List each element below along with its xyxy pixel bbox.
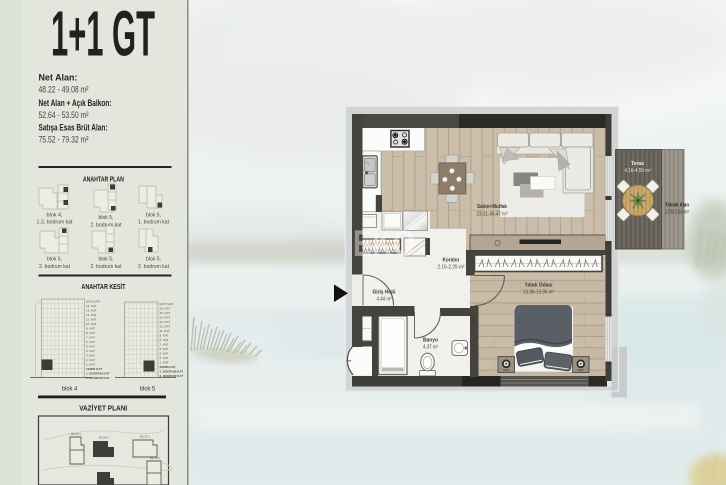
svg-text:11. KAT: 11. KAT xyxy=(86,318,97,322)
svg-text:blok 5,: blok 5, xyxy=(99,215,114,221)
svg-text:1. BODRUM KAT: 1. BODRUM KAT xyxy=(160,370,184,374)
svg-text:7. KAT: 7. KAT xyxy=(160,343,169,347)
svg-text:2.00-2.50 m²: 2.00-2.50 m² xyxy=(665,210,689,216)
svg-text:2. bodrum kat: 2. bodrum kat xyxy=(138,264,170,270)
svg-text:7. KAT: 7. KAT xyxy=(86,336,95,340)
svg-text:3. KAT: 3. KAT xyxy=(160,356,169,360)
svg-text:blok 5,: blok 5, xyxy=(146,213,161,219)
svg-text:blok 5: blok 5 xyxy=(140,386,156,393)
svg-text:14. KAT: 14. KAT xyxy=(160,316,171,320)
svg-text:ANAHTAR KESİT: ANAHTAR KESİT xyxy=(81,282,125,291)
svg-text:4.44 m²: 4.44 m² xyxy=(377,297,392,303)
svg-text:3. KAT: 3. KAT xyxy=(86,354,95,358)
svg-text:75.52 - 79.32 m²: 75.52 - 79.32 m² xyxy=(39,135,89,146)
svg-text:BLOK 5: BLOK 5 xyxy=(150,456,160,460)
svg-text:48.22 - 49.08 m²: 48.22 - 49.08 m² xyxy=(39,85,89,96)
svg-text:2.16-2.25 m²: 2.16-2.25 m² xyxy=(438,265,465,271)
svg-text:23.21-36.47 m²: 23.21-36.47 m² xyxy=(477,212,508,218)
svg-text:52.64 - 53.50 m²: 52.64 - 53.50 m² xyxy=(39,110,89,121)
svg-text:Koridor: Koridor xyxy=(443,258,461,264)
svg-text:ÇATI KATI: ÇATI KATI xyxy=(160,302,174,306)
svg-text:VAZİYET PLANI: VAZİYET PLANI xyxy=(79,404,127,413)
svg-text:ZEMİN KAT: ZEMİN KAT xyxy=(86,366,102,371)
svg-text:13.36-13.95 m²: 13.36-13.95 m² xyxy=(523,290,554,296)
svg-text:4.37 m²: 4.37 m² xyxy=(423,345,438,351)
svg-text:5. KAT: 5. KAT xyxy=(160,347,169,351)
svg-text:Salon+Mutfak: Salon+Mutfak xyxy=(477,204,508,210)
svg-text:ANAHTAR PLAN: ANAHTAR PLAN xyxy=(83,175,124,184)
svg-text:1. KAT: 1. KAT xyxy=(86,363,95,367)
svg-text:BLOK 1: BLOK 1 xyxy=(140,435,150,439)
svg-text:8. KAT: 8. KAT xyxy=(160,338,169,342)
svg-text:16. KAT: 16. KAT xyxy=(160,307,171,311)
svg-text:2. BODRUM KAT: 2. BODRUM KAT xyxy=(160,374,184,378)
svg-text:blok 5,: blok 5, xyxy=(99,257,114,263)
svg-text:Net Alan:: Net Alan: xyxy=(39,73,78,84)
svg-text:4. KAT: 4. KAT xyxy=(86,349,95,353)
svg-text:2. bodrum kat: 2. bodrum kat xyxy=(39,264,71,270)
svg-text:blok 4,: blok 4, xyxy=(47,213,63,219)
svg-text:4. KAT: 4. KAT xyxy=(160,352,169,356)
svg-text:Net Alan + Açık Balkon:: Net Alan + Açık Balkon: xyxy=(39,98,112,109)
svg-text:Teras: Teras xyxy=(631,161,644,167)
svg-text:Satışa Esas Brüt Alan:: Satışa Esas Brüt Alan: xyxy=(39,123,108,134)
svg-text:ZEMİN KAT: ZEMİN KAT xyxy=(160,364,176,369)
svg-text:4.16-4.55 m²: 4.16-4.55 m² xyxy=(625,168,651,174)
svg-text:1+1 GT: 1+1 GT xyxy=(51,0,155,70)
svg-text:6. KAT: 6. KAT xyxy=(86,340,95,344)
svg-text:11. KAT: 11. KAT xyxy=(160,329,171,333)
svg-text:blok 4: blok 4 xyxy=(62,386,78,393)
svg-text:12. KAT: 12. KAT xyxy=(86,313,97,317)
svg-text:13. KAT: 13. KAT xyxy=(86,309,97,313)
svg-text:BLOK 2: BLOK 2 xyxy=(71,432,81,436)
svg-text:Teknik Alan: Teknik Alan xyxy=(665,203,689,209)
svg-text:8. KAT: 8. KAT xyxy=(86,331,95,335)
svg-text:13. KAT: 13. KAT xyxy=(160,320,171,324)
svg-text:1. BODRUM KAT: 1. BODRUM KAT xyxy=(86,372,110,376)
svg-text:1-2. bodrum kat: 1-2. bodrum kat xyxy=(37,220,74,226)
svg-text:EKO: EKO xyxy=(353,223,415,264)
svg-text:9. KAT: 9. KAT xyxy=(160,334,169,338)
svg-text:Banyo: Banyo xyxy=(423,338,438,344)
svg-text:2. BODRUM KAT: 2. BODRUM KAT xyxy=(86,376,110,380)
svg-text:1. bodrum kat: 1. bodrum kat xyxy=(138,220,170,226)
svg-text:Giriş Holü: Giriş Holü xyxy=(373,290,396,296)
svg-text:12. KAT: 12. KAT xyxy=(160,325,171,329)
svg-text:14. KAT: 14. KAT xyxy=(86,304,97,308)
svg-text:BLOK 4: BLOK 4 xyxy=(99,436,109,440)
svg-text:2. KAT: 2. KAT xyxy=(86,358,95,362)
svg-text:10. KAT: 10. KAT xyxy=(86,322,97,326)
svg-text:9. KAT: 9. KAT xyxy=(86,327,95,331)
svg-text:ÇATI KATI: ÇATI KATI xyxy=(86,300,100,304)
svg-text:blok 5,: blok 5, xyxy=(146,257,161,263)
svg-text:Yatak Odası: Yatak Odası xyxy=(525,283,553,289)
svg-text:5. KAT: 5. KAT xyxy=(86,345,95,349)
svg-text:2. bodrum kat: 2. bodrum kat xyxy=(91,264,123,270)
svg-text:15. KAT: 15. KAT xyxy=(160,311,171,315)
svg-text:1. KAT: 1. KAT xyxy=(160,361,169,365)
svg-text:blok 5,: blok 5, xyxy=(47,257,62,263)
